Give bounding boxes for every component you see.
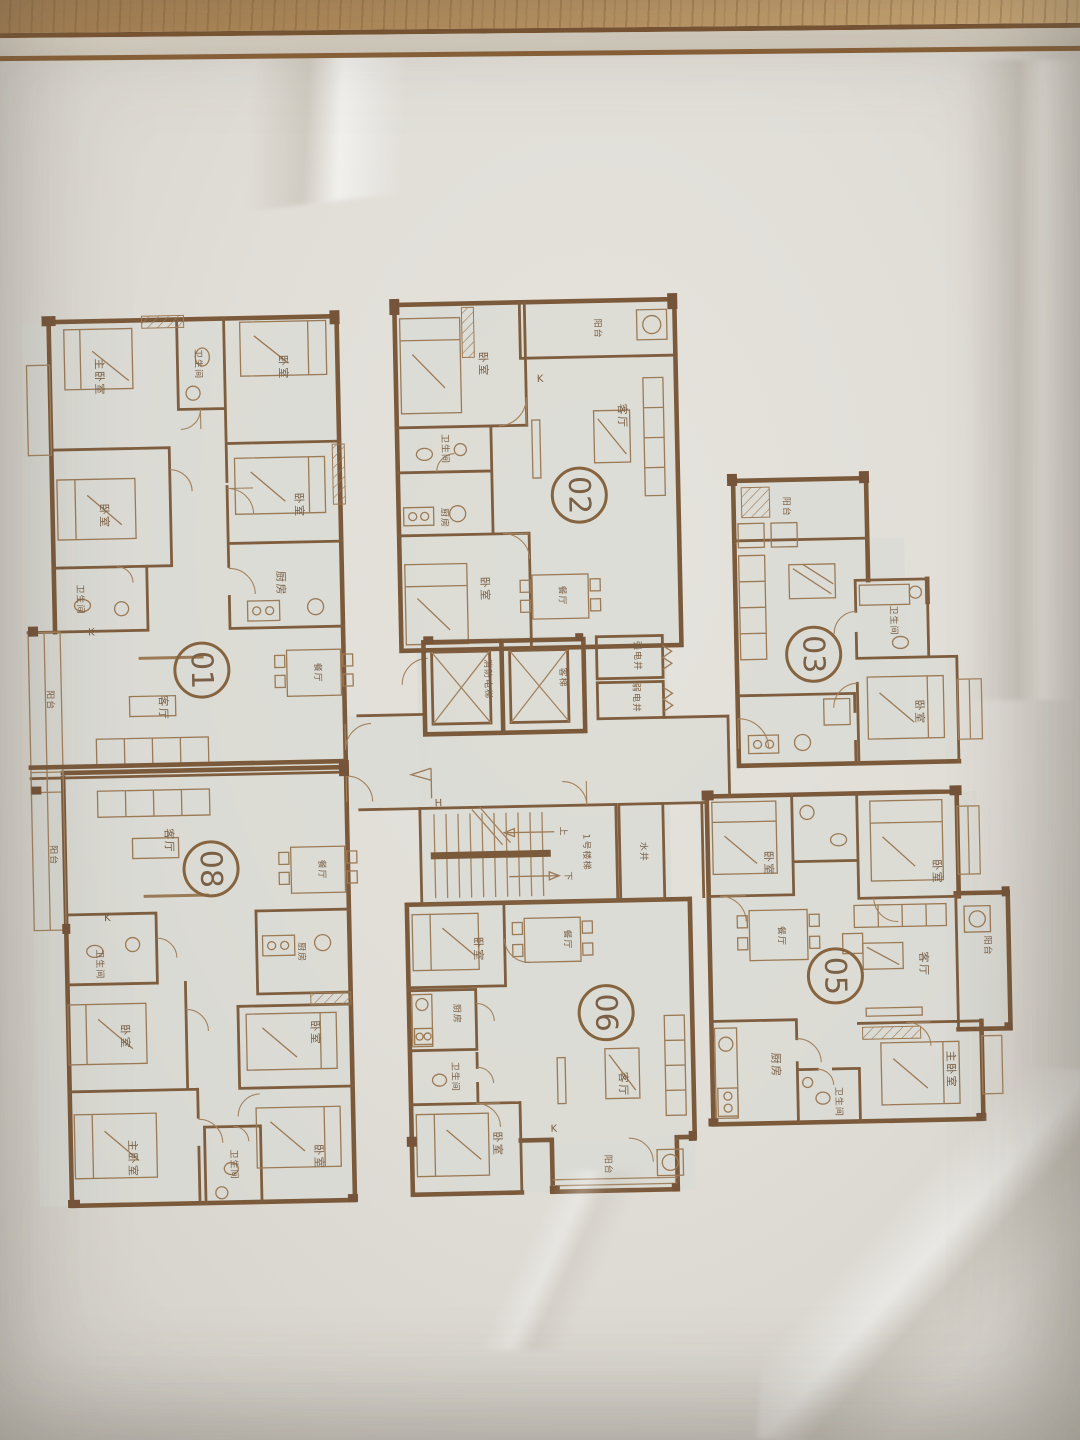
room-label: 厨房 (296, 942, 308, 962)
room-label: 阳台 (48, 845, 60, 865)
room-label: 客厅 (917, 951, 932, 976)
room-label: 餐厅 (312, 663, 324, 683)
core-label: 强电井 (631, 641, 644, 671)
room-label: 厨房 (451, 1004, 463, 1024)
unit-number: 03 (795, 635, 831, 674)
room-label: 客厅 (156, 695, 171, 720)
desk-and-paper-edge (0, 0, 1080, 61)
room-label: 卧室 (491, 1131, 506, 1156)
room-label: 厨房 (439, 508, 451, 528)
room-label: 客厅 (616, 1072, 631, 1097)
door-mark: K (88, 627, 95, 638)
room-label: 餐厅 (775, 926, 787, 946)
room-label: 客厅 (162, 828, 177, 853)
core-label: 1号楼梯 (580, 834, 593, 871)
room-label: 阳台 (982, 936, 994, 956)
room-label: 主卧室 (944, 1051, 959, 1089)
unit-number: 06 (588, 993, 624, 1032)
floorplan-svg: 01 主卧室 卫生间 卧室 卧室 卧室 厨房 卫生间 客厅 餐厅 阳台 (0, 0, 1080, 1440)
core-label: 下 (562, 871, 572, 881)
room-label: 卧室 (472, 937, 487, 962)
core-label: 水井 (638, 842, 650, 862)
room-label: 阳台 (602, 1155, 614, 1175)
unit-number: 08 (193, 849, 229, 888)
unit-number: 05 (817, 956, 853, 995)
room-label: 卧室 (292, 492, 307, 517)
building-footprint (21, 292, 1014, 1206)
room-label: 卫生间 (449, 1062, 462, 1092)
room-label: 卫生间 (228, 1149, 241, 1179)
core-label: 消防电梯 (482, 659, 495, 699)
room-label: 卧室 (913, 699, 928, 724)
room-label: 客厅 (615, 404, 630, 429)
room-label: 卫生间 (888, 605, 901, 635)
unit-number: 02 (561, 476, 597, 515)
room-label: 餐厅 (561, 929, 573, 949)
core-label: 上 (557, 826, 568, 836)
room-label: 卧室 (276, 355, 291, 380)
room-label: 厨房 (769, 1053, 783, 1078)
room-label: 卫生间 (94, 949, 107, 979)
room-label: 卧室 (930, 859, 945, 884)
floorplan-photo: 01 主卧室 卫生间 卧室 卧室 卧室 厨房 卫生间 客厅 餐厅 阳台 (0, 0, 1080, 1440)
room-label: 卫生间 (833, 1087, 846, 1117)
room-label: 厨房 (274, 571, 288, 596)
door-mark: K (550, 1124, 557, 1135)
room-label: 餐厅 (316, 859, 328, 879)
room-label: 餐厅 (556, 585, 568, 605)
section-mark: H (435, 798, 443, 809)
room-label: 阳台 (780, 497, 792, 517)
room-label: 卧室 (97, 503, 112, 528)
door-mark: K (104, 913, 111, 924)
room-label: 卧室 (476, 351, 491, 376)
room-label: 主卧室 (126, 1140, 141, 1178)
room-label: 卧室 (118, 1024, 133, 1049)
room-label: 卧室 (762, 851, 777, 876)
room-label: 阳台 (44, 690, 56, 710)
room-label: 卫生间 (192, 349, 205, 379)
room-label: 卫生间 (74, 584, 87, 614)
core-label: 客梯 (557, 667, 569, 687)
door-mark: K (537, 374, 544, 385)
room-label: 阳台 (592, 319, 604, 339)
room-label: 卧室 (478, 576, 493, 601)
room-label: 主卧室 (92, 358, 107, 396)
room-label: 卫生间 (439, 434, 452, 464)
room-label: 卧室 (308, 1020, 323, 1045)
room-label: 卧室 (312, 1144, 327, 1169)
core-label: 弱电井 (630, 683, 643, 713)
unit-number: 01 (183, 651, 219, 690)
